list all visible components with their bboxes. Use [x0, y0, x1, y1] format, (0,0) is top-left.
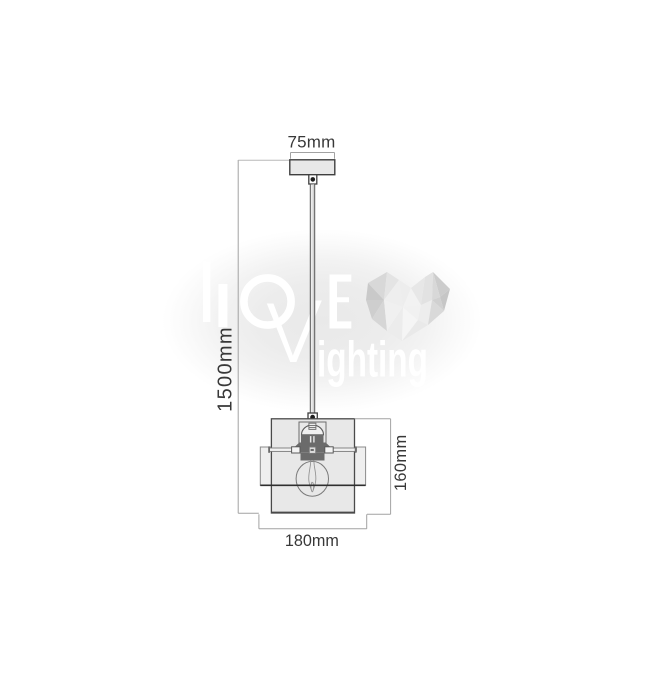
svg-text:75mm: 75mm — [287, 133, 335, 152]
svg-text:180mm: 180mm — [285, 532, 339, 550]
svg-text:ighting: ighting — [317, 332, 428, 388]
svg-text:160mm: 160mm — [392, 434, 410, 491]
svg-text:1500mm: 1500mm — [215, 326, 237, 412]
